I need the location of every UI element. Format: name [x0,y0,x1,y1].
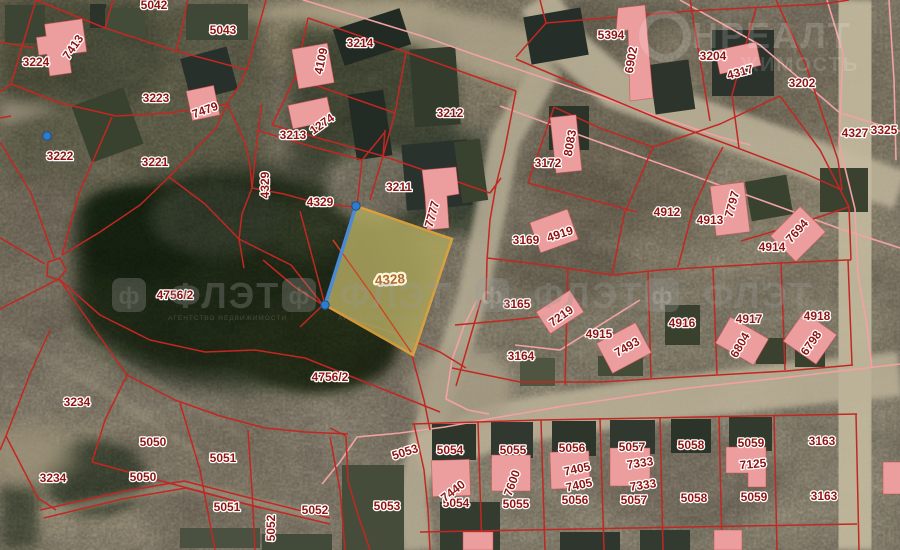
svg-text:3213: 3213 [280,128,307,142]
svg-text:4913: 4913 [697,213,724,227]
svg-text:ЖИМОСТЬ: ЖИМОСТЬ [739,54,859,76]
svg-text:5053: 5053 [374,499,401,513]
svg-text:3234: 3234 [64,395,91,409]
svg-text:5059: 5059 [738,436,765,450]
svg-text:4912: 4912 [654,205,681,219]
svg-text:4914: 4914 [759,240,786,254]
svg-text:5056: 5056 [559,441,586,455]
svg-text:ФЛЭТ: ФЛЭТ [703,275,813,316]
svg-text:5055: 5055 [500,443,527,457]
svg-text:5042: 5042 [141,0,168,12]
svg-text:3234: 3234 [40,471,67,485]
svg-text:3211: 3211 [386,180,412,194]
svg-text:3164: 3164 [508,349,535,363]
svg-text:ф: ф [482,283,503,310]
svg-text:АГЕНТСТВО НЕДВИЖИМОСТИ: АГЕНТСТВО НЕДВИЖИМОСТИ [531,315,650,322]
svg-text:3202: 3202 [789,76,816,90]
svg-text:5056: 5056 [562,493,589,507]
svg-text:3224: 3224 [23,55,50,69]
svg-text:АГЕНТСТВО НЕДВИЖИМОСТИ: АГЕНТСТВО НЕДВИЖИМОСТИ [168,315,287,322]
svg-text:5057: 5057 [619,440,646,454]
svg-text:ФЛЭТ: ФЛЭТ [533,275,643,316]
svg-text:5051: 5051 [210,451,237,465]
svg-text:5059: 5059 [741,490,768,504]
svg-text:5050: 5050 [130,470,157,484]
svg-text:ф: ф [119,283,140,310]
svg-text:3163: 3163 [809,434,836,448]
svg-text:5057: 5057 [621,493,648,507]
svg-text:5050: 5050 [140,435,167,449]
svg-text:5051: 5051 [214,500,241,514]
svg-text:4329: 4329 [307,195,334,209]
svg-text:5052: 5052 [264,514,278,541]
svg-text:3325: 3325 [871,123,898,137]
svg-text:АГЕНТСТВО НЕДВИЖИМОСТИ: АГЕНТСТВО НЕДВИЖИМОСТИ [338,315,457,322]
svg-text:5058: 5058 [681,491,708,505]
svg-text:5052: 5052 [302,503,329,517]
svg-text:4756/2: 4756/2 [312,370,349,384]
svg-text:5054: 5054 [437,443,464,457]
svg-text:НРЕАЛТ: НРЕАЛТ [692,15,852,56]
svg-text:ФЛЭТ: ФЛЭТ [170,275,280,316]
svg-text:3214: 3214 [347,36,374,50]
svg-text:3172: 3172 [535,156,562,170]
svg-text:ф: ф [289,283,310,310]
svg-text:4329: 4329 [258,171,272,198]
svg-text:4916: 4916 [669,316,696,330]
svg-text:5394: 5394 [598,28,625,42]
svg-text:3169: 3169 [513,233,540,247]
svg-text:ф: ф [652,283,673,310]
svg-text:7125: 7125 [739,456,767,472]
svg-text:ФЛЭТ: ФЛЭТ [340,275,450,316]
svg-text:5043: 5043 [210,23,237,37]
svg-text:3223: 3223 [143,91,170,105]
svg-text:АГЕНТСТВО НЕДВИЖИМОСТИ: АГЕНТСТВО НЕДВИЖИМОСТИ [701,315,820,322]
svg-text:3163: 3163 [811,489,838,503]
svg-text:5055: 5055 [503,497,530,511]
svg-text:5058: 5058 [678,438,705,452]
svg-text:4327: 4327 [842,126,869,140]
svg-text:3212: 3212 [437,106,464,120]
svg-text:3222: 3222 [47,149,74,163]
svg-text:3221: 3221 [142,155,169,169]
svg-text:4915: 4915 [586,327,613,341]
